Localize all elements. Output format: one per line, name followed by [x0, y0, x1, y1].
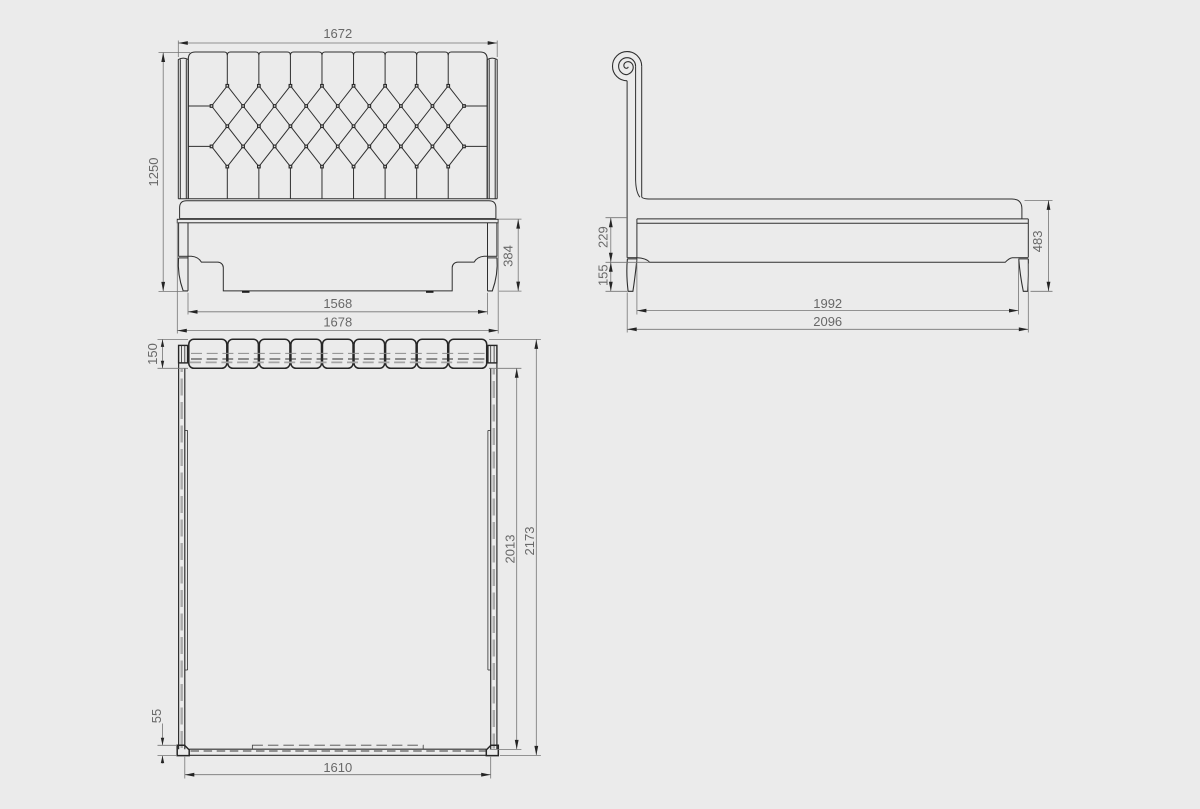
svg-text:1568: 1568: [323, 296, 352, 311]
svg-text:483: 483: [1030, 231, 1045, 253]
svg-text:2096: 2096: [813, 314, 842, 329]
svg-text:1610: 1610: [323, 760, 352, 775]
svg-text:384: 384: [500, 245, 515, 267]
svg-text:229: 229: [596, 226, 611, 248]
svg-text:2013: 2013: [502, 535, 517, 564]
svg-text:2173: 2173: [522, 527, 537, 556]
svg-text:1992: 1992: [813, 296, 842, 311]
svg-text:155: 155: [596, 264, 611, 286]
svg-text:1250: 1250: [146, 158, 161, 187]
svg-text:1672: 1672: [323, 26, 352, 41]
svg-text:150: 150: [145, 343, 160, 365]
svg-text:1678: 1678: [323, 315, 352, 330]
svg-text:55: 55: [149, 709, 164, 723]
